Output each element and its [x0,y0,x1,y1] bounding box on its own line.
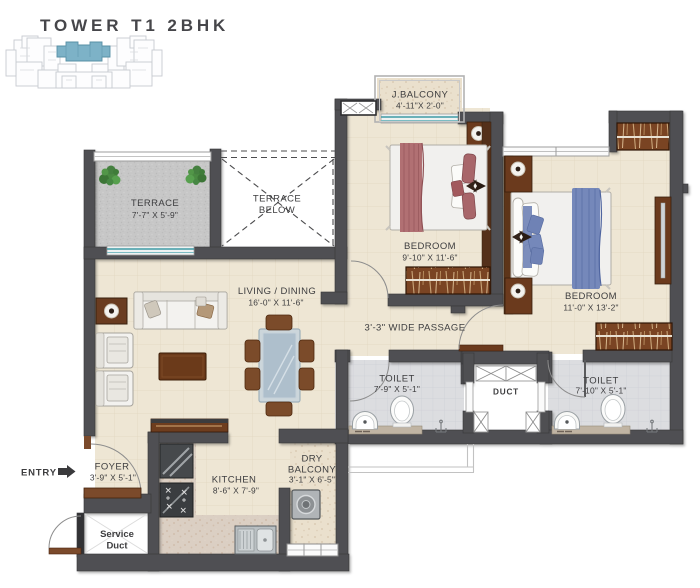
svg-text:3'-9" X 5'-1": 3'-9" X 5'-1" [90,473,136,483]
svg-text:3'-3" WIDE PASSAGE: 3'-3" WIDE PASSAGE [365,323,466,334]
svg-text:11'-0" X 13'-2": 11'-0" X 13'-2" [563,303,618,313]
svg-text:3'-1" X 6'-5": 3'-1" X 6'-5" [289,475,335,485]
svg-text:4'-11"X 2'-0": 4'-11"X 2'-0" [396,101,444,111]
svg-text:8'-6" X 7'-9": 8'-6" X 7'-9" [213,486,259,496]
svg-text:7'-7" X 5'-9": 7'-7" X 5'-9" [132,210,178,220]
svg-text:Duct: Duct [106,541,128,552]
svg-text:16'-0" X 11'-6": 16'-0" X 11'-6" [248,298,303,308]
svg-text:BELOW: BELOW [259,205,295,216]
svg-text:TERRACE: TERRACE [253,194,301,205]
svg-text:FOYER: FOYER [95,462,130,473]
svg-text:DRY: DRY [301,454,322,465]
svg-text:7'-10" X 5'-1": 7'-10" X 5'-1" [575,386,626,396]
svg-text:Service: Service [100,529,134,540]
svg-text:TOWER T1 2BHK: TOWER T1 2BHK [40,16,229,35]
svg-text:TOILET: TOILET [379,374,414,385]
svg-text:BEDROOM: BEDROOM [565,291,617,302]
svg-text:TERRACE: TERRACE [131,198,179,209]
svg-text:DUCT: DUCT [493,388,519,397]
svg-text:ENTRY: ENTRY [21,468,57,479]
svg-text:BEDROOM: BEDROOM [404,241,456,252]
svg-text:KITCHEN: KITCHEN [212,475,257,486]
svg-text:9'-10" X 11'-6": 9'-10" X 11'-6" [402,253,457,263]
svg-text:LIVING / DINING: LIVING / DINING [238,286,316,297]
svg-text:J.BALCONY: J.BALCONY [392,90,449,101]
svg-text:7'-9" X 5'-1": 7'-9" X 5'-1" [374,384,420,394]
